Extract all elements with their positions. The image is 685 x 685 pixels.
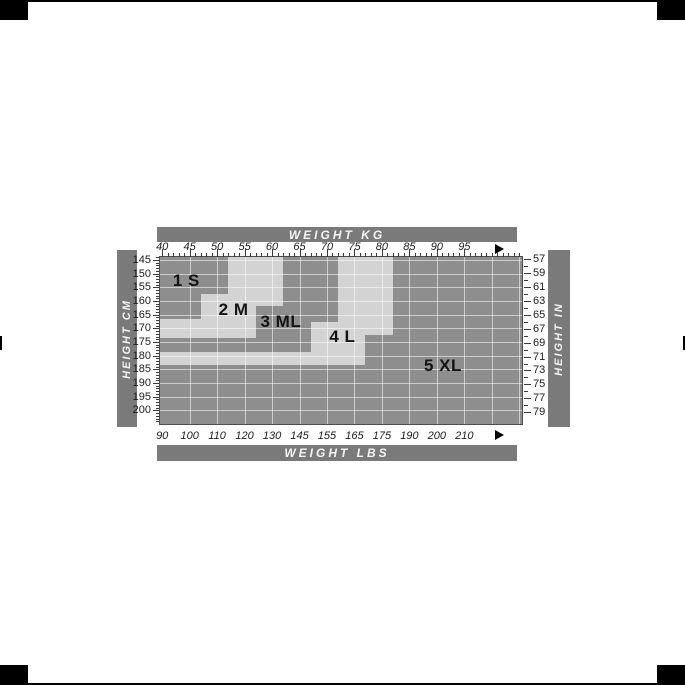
kg-tick-minor <box>442 253 443 257</box>
grid-line-vertical <box>382 257 383 424</box>
cm-tick-minor <box>156 345 159 346</box>
cm-tick-minor <box>156 306 159 307</box>
in-tick-label: 79 <box>533 407 555 417</box>
kg-tick-label: 60 <box>258 242 286 252</box>
in-tick-label: 63 <box>533 296 555 306</box>
cm-tick-minor <box>156 361 159 362</box>
in-tick-major <box>524 259 531 260</box>
cm-tick-label: 200 <box>126 405 151 415</box>
weight-kg-header-bar: WEIGHT KG <box>157 227 517 242</box>
grid-line-horizontal <box>160 383 522 384</box>
grid-line-horizontal <box>160 397 522 398</box>
in-tick-major <box>524 315 531 316</box>
cm-tick-minor <box>156 326 159 327</box>
cm-tick-major <box>153 328 159 329</box>
frame-corner-mark <box>0 0 28 20</box>
lbs-tick-label: 210 <box>448 431 480 442</box>
cm-tick-minor <box>156 282 159 283</box>
kg-tick-label: 90 <box>423 242 451 252</box>
in-tick-minor <box>524 336 528 337</box>
cm-tick-label: 160 <box>126 296 151 306</box>
cm-tick-minor <box>156 334 159 335</box>
kg-tick-minor <box>201 253 202 257</box>
in-tick-major <box>524 357 531 358</box>
cm-tick-minor <box>156 276 159 277</box>
kg-tick-minor <box>459 253 460 257</box>
cm-tick-minor <box>156 399 159 400</box>
cm-tick-minor <box>156 391 159 392</box>
size-label: 5 XL <box>424 356 462 376</box>
kg-tick-minor <box>173 253 174 257</box>
in-tick-label: 73 <box>533 365 555 375</box>
kg-tick-minor <box>420 253 421 257</box>
cm-tick-minor <box>156 265 159 266</box>
in-tick-label: 77 <box>533 393 555 403</box>
frame-corner-mark <box>0 665 28 685</box>
kg-tick-minor <box>234 253 235 257</box>
grid-line-vertical <box>327 257 328 424</box>
kg-tick-minor <box>365 253 366 257</box>
grid-line-horizontal <box>160 287 522 288</box>
cm-tick-minor <box>156 304 159 305</box>
cm-tick-minor <box>156 416 159 417</box>
kg-tick-minor <box>261 253 262 257</box>
cm-tick-label: 145 <box>126 255 151 265</box>
kg-tick-minor <box>508 253 509 257</box>
grid-line-horizontal <box>160 260 522 261</box>
in-tick-major <box>524 412 531 413</box>
in-tick-minor <box>524 280 528 281</box>
grid-line-horizontal <box>160 301 522 302</box>
kg-tick-minor <box>179 253 180 257</box>
weight-lbs-title: WEIGHT LBS <box>157 446 517 460</box>
cm-tick-minor <box>156 257 159 258</box>
cm-tick-minor <box>156 372 159 373</box>
grid-line-vertical <box>245 257 246 424</box>
cm-tick-minor <box>156 298 159 299</box>
cm-tick-minor <box>156 347 159 348</box>
kg-tick-label: 45 <box>176 242 204 252</box>
in-tick-minor <box>524 391 528 392</box>
kg-tick-label: 95 <box>450 242 478 252</box>
cm-tick-minor <box>156 323 159 324</box>
cm-tick-minor <box>156 402 159 403</box>
kg-tick-label: 85 <box>395 242 423 252</box>
size-label: 3 ML <box>260 312 301 332</box>
cm-tick-major <box>153 287 159 288</box>
kg-tick-label: 50 <box>203 242 231 252</box>
kg-tick-minor <box>448 253 449 257</box>
kg-tick-label: 65 <box>286 242 314 252</box>
frame-line-top <box>0 0 685 2</box>
cm-tick-label: 195 <box>126 392 151 402</box>
kg-tick-minor <box>486 253 487 257</box>
in-tick-major <box>524 273 531 274</box>
in-tick-major <box>524 384 531 385</box>
kg-tick-minor <box>278 253 279 257</box>
size-label: 1 S <box>173 271 200 291</box>
kg-tick-minor <box>223 253 224 257</box>
kg-tick-minor <box>338 253 339 257</box>
kg-tick-minor <box>321 253 322 257</box>
kg-tick-minor <box>453 253 454 257</box>
in-tick-major <box>524 343 531 344</box>
in-tick-minor <box>524 405 528 406</box>
cm-tick-label: 180 <box>126 351 151 361</box>
cm-tick-minor <box>156 405 159 406</box>
kg-tick-minor <box>289 253 290 257</box>
kg-tick-minor <box>212 253 213 257</box>
grid-line-horizontal <box>160 410 522 411</box>
in-tick-minor <box>524 364 528 365</box>
cm-tick-minor <box>156 279 159 280</box>
cm-tick-minor <box>156 293 159 294</box>
in-tick-label: 71 <box>533 352 555 362</box>
cm-tick-major <box>153 342 159 343</box>
in-tick-minor <box>524 350 528 351</box>
kg-tick-minor <box>431 253 432 257</box>
in-tick-major <box>524 301 531 302</box>
kg-tick-label: 80 <box>368 242 396 252</box>
in-tick-minor <box>524 294 528 295</box>
cm-tick-label: 150 <box>126 269 151 279</box>
kg-tick-label: 40 <box>148 242 176 252</box>
cm-tick-label: 185 <box>126 364 151 374</box>
cm-tick-minor <box>156 394 159 395</box>
cm-tick-minor <box>156 312 159 313</box>
plot-area: 1 S2 M3 ML4 L5 XL <box>160 257 522 424</box>
kg-tick-minor <box>343 253 344 257</box>
size-chart: WEIGHT KG WEIGHT LBS HEIGHT CM HEIGHT IN… <box>0 0 685 685</box>
grid-line-vertical <box>272 257 273 424</box>
in-tick-major <box>524 287 531 288</box>
kg-tick-minor <box>195 253 196 257</box>
in-tick-label: 67 <box>533 324 555 334</box>
cm-tick-minor <box>156 296 159 297</box>
kg-tick-minor <box>426 253 427 257</box>
in-tick-minor <box>524 322 528 323</box>
kg-tick-minor <box>404 253 405 257</box>
weight-kg-title: WEIGHT KG <box>157 228 517 242</box>
cm-tick-label: 175 <box>126 337 151 347</box>
in-tick-label: 69 <box>533 338 555 348</box>
kg-tick-minor <box>316 253 317 257</box>
kg-tick-minor <box>305 253 306 257</box>
cm-tick-major <box>153 274 159 275</box>
frame-corner-mark <box>657 665 685 685</box>
cm-tick-minor <box>156 339 159 340</box>
cm-tick-major <box>153 369 159 370</box>
in-tick-minor <box>524 308 528 309</box>
cm-tick-minor <box>156 364 159 365</box>
in-tick-label: 61 <box>533 282 555 292</box>
in-tick-label: 57 <box>533 254 555 264</box>
weight-lbs-header-bar: WEIGHT LBS <box>157 445 517 461</box>
kg-tick-minor <box>481 253 482 257</box>
size-label: 4 L <box>329 327 355 347</box>
kg-tick-label: 70 <box>313 242 341 252</box>
kg-tick-minor <box>371 253 372 257</box>
cm-tick-minor <box>156 388 159 389</box>
cm-tick-minor <box>156 358 159 359</box>
kg-tick-minor <box>360 253 361 257</box>
cm-tick-minor <box>156 309 159 310</box>
grid-line-vertical <box>519 257 520 424</box>
kg-tick-minor <box>206 253 207 257</box>
cm-tick-label: 170 <box>126 323 151 333</box>
kg-tick-minor <box>376 253 377 257</box>
cm-tick-minor <box>156 337 159 338</box>
size-label: 2 M <box>219 300 249 320</box>
kg-tick-minor <box>393 253 394 257</box>
kg-tick-minor <box>256 253 257 257</box>
grid-line-horizontal <box>160 315 522 316</box>
cm-tick-minor <box>156 413 159 414</box>
grid-line-vertical <box>437 257 438 424</box>
cm-tick-major <box>153 315 159 316</box>
kg-tick-minor <box>239 253 240 257</box>
kg-tick-minor <box>228 253 229 257</box>
grid-line-vertical <box>492 257 493 424</box>
cm-tick-major <box>153 356 159 357</box>
cm-tick-minor <box>156 320 159 321</box>
cm-tick-label: 190 <box>126 378 151 388</box>
kg-tick-minor <box>250 253 251 257</box>
overflow-arrow-bottom-icon <box>495 430 504 440</box>
grid-line-vertical <box>464 257 465 424</box>
kg-tick-minor <box>168 253 169 257</box>
in-tick-label: 75 <box>533 379 555 389</box>
kg-tick-minor <box>415 253 416 257</box>
cm-tick-minor <box>156 263 159 264</box>
in-tick-major <box>524 329 531 330</box>
kg-tick-minor <box>267 253 268 257</box>
grid-line-vertical <box>217 257 218 424</box>
grid-line-vertical <box>300 257 301 424</box>
in-tick-label: 59 <box>533 268 555 278</box>
cm-tick-minor <box>156 421 159 422</box>
cm-tick-major <box>153 397 159 398</box>
kg-tick-minor <box>470 253 471 257</box>
in-tick-major <box>524 370 531 371</box>
grid-line-vertical <box>409 257 410 424</box>
kg-tick-minor <box>332 253 333 257</box>
grid-line-horizontal <box>160 356 522 357</box>
kg-tick-minor <box>294 253 295 257</box>
cm-tick-minor <box>156 367 159 368</box>
kg-tick-minor <box>387 253 388 257</box>
cm-tick-minor <box>156 268 159 269</box>
kg-tick-minor <box>492 253 493 257</box>
kg-tick-minor <box>283 253 284 257</box>
cm-tick-minor <box>156 290 159 291</box>
cm-tick-minor <box>156 271 159 272</box>
grid-line-horizontal <box>160 369 522 370</box>
cm-tick-label: 165 <box>126 310 151 320</box>
cm-tick-label: 155 <box>126 282 151 292</box>
cm-tick-minor <box>156 331 159 332</box>
cm-tick-minor <box>156 408 159 409</box>
kg-tick-minor <box>475 253 476 257</box>
in-tick-minor <box>524 266 528 267</box>
overflow-arrow-top-icon <box>495 244 504 254</box>
cm-tick-minor <box>156 380 159 381</box>
cm-tick-minor <box>156 378 159 379</box>
kg-tick-minor <box>349 253 350 257</box>
frame-corner-mark <box>657 0 685 20</box>
kg-tick-label: 55 <box>231 242 259 252</box>
kg-tick-minor <box>519 253 520 257</box>
kg-tick-minor <box>398 253 399 257</box>
kg-tick-minor <box>311 253 312 257</box>
cm-tick-major <box>153 410 159 411</box>
kg-tick-minor <box>184 253 185 257</box>
in-tick-major <box>524 398 531 399</box>
cm-tick-major <box>153 301 159 302</box>
kg-tick-minor <box>514 253 515 257</box>
cm-tick-minor <box>156 317 159 318</box>
cm-tick-major <box>153 383 159 384</box>
cm-tick-minor <box>156 386 159 387</box>
cm-tick-minor <box>156 375 159 376</box>
cm-tick-minor <box>156 285 159 286</box>
grid-line-horizontal <box>160 274 522 275</box>
cm-tick-minor <box>156 350 159 351</box>
cm-tick-minor <box>156 353 159 354</box>
cm-tick-minor <box>156 419 159 420</box>
cm-tick-major <box>153 260 159 261</box>
in-tick-label: 65 <box>533 310 555 320</box>
frame-edge-mark <box>0 336 2 350</box>
in-tick-minor <box>524 377 528 378</box>
kg-tick-label: 75 <box>340 242 368 252</box>
